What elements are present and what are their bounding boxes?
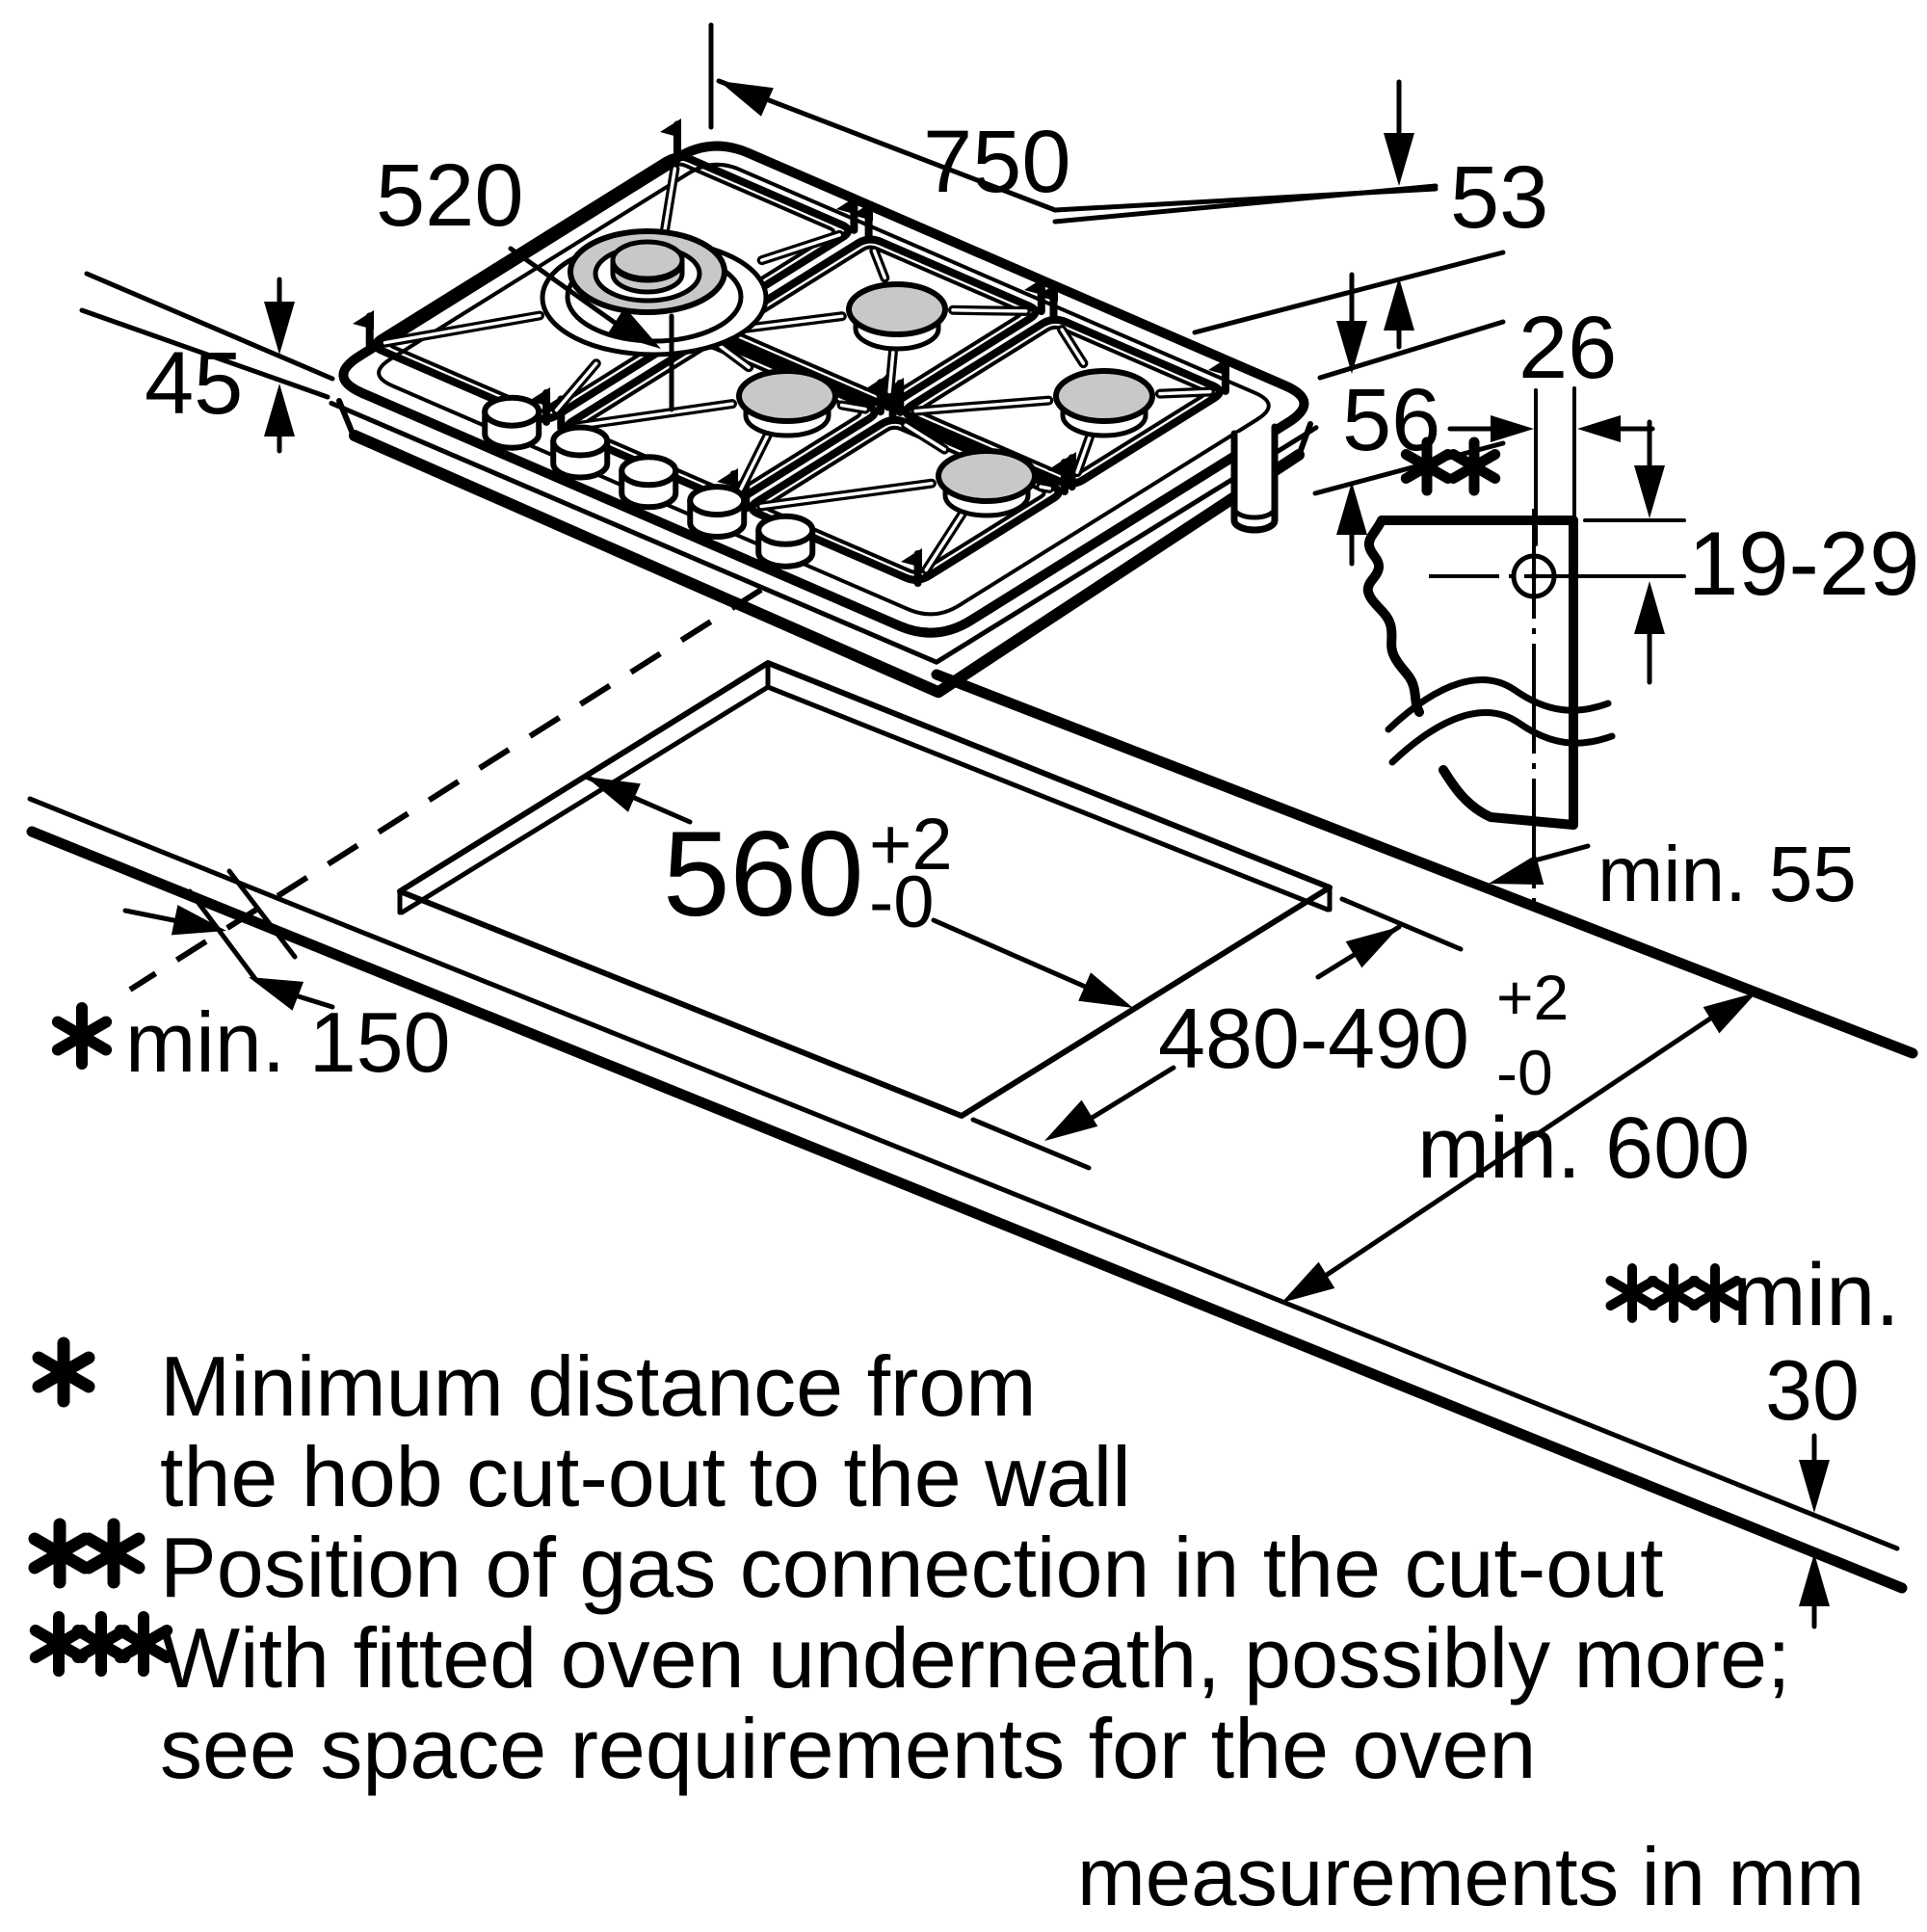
svg-text:Minimum distance from: Minimum distance from — [160, 1338, 1037, 1434]
svg-text:min. 150: min. 150 — [125, 994, 451, 1090]
svg-text:measurements in mm: measurements in mm — [1077, 1832, 1864, 1923]
svg-text:-0: -0 — [869, 861, 935, 943]
svg-text:-0: -0 — [1496, 1037, 1553, 1108]
svg-text:480-490: 480-490 — [1158, 991, 1469, 1086]
svg-text:Position of gas connection in: Position of gas connection in the cut-ou… — [160, 1520, 1664, 1615]
svg-text:750: 750 — [923, 113, 1071, 211]
svg-text:+2: +2 — [1496, 962, 1569, 1033]
svg-text:With fitted oven underneath, p: With fitted oven underneath, possibly mo… — [160, 1610, 1790, 1706]
svg-text:min.: min. — [1732, 1246, 1900, 1344]
svg-text:min. 600: min. 600 — [1417, 1100, 1750, 1197]
svg-text:520: 520 — [376, 146, 524, 245]
svg-text:26: 26 — [1518, 299, 1617, 397]
svg-text:the hob cut-out to the wall: the hob cut-out to the wall — [160, 1429, 1131, 1524]
svg-text:53: 53 — [1450, 148, 1548, 247]
svg-text:560: 560 — [663, 807, 864, 941]
svg-text:19-29: 19-29 — [1688, 513, 1919, 614]
svg-text:30: 30 — [1765, 1342, 1860, 1438]
svg-text:min. 55: min. 55 — [1597, 831, 1857, 918]
svg-text:45: 45 — [145, 334, 243, 433]
svg-text:see space requirements for the: see space requirements for the oven — [160, 1701, 1536, 1796]
